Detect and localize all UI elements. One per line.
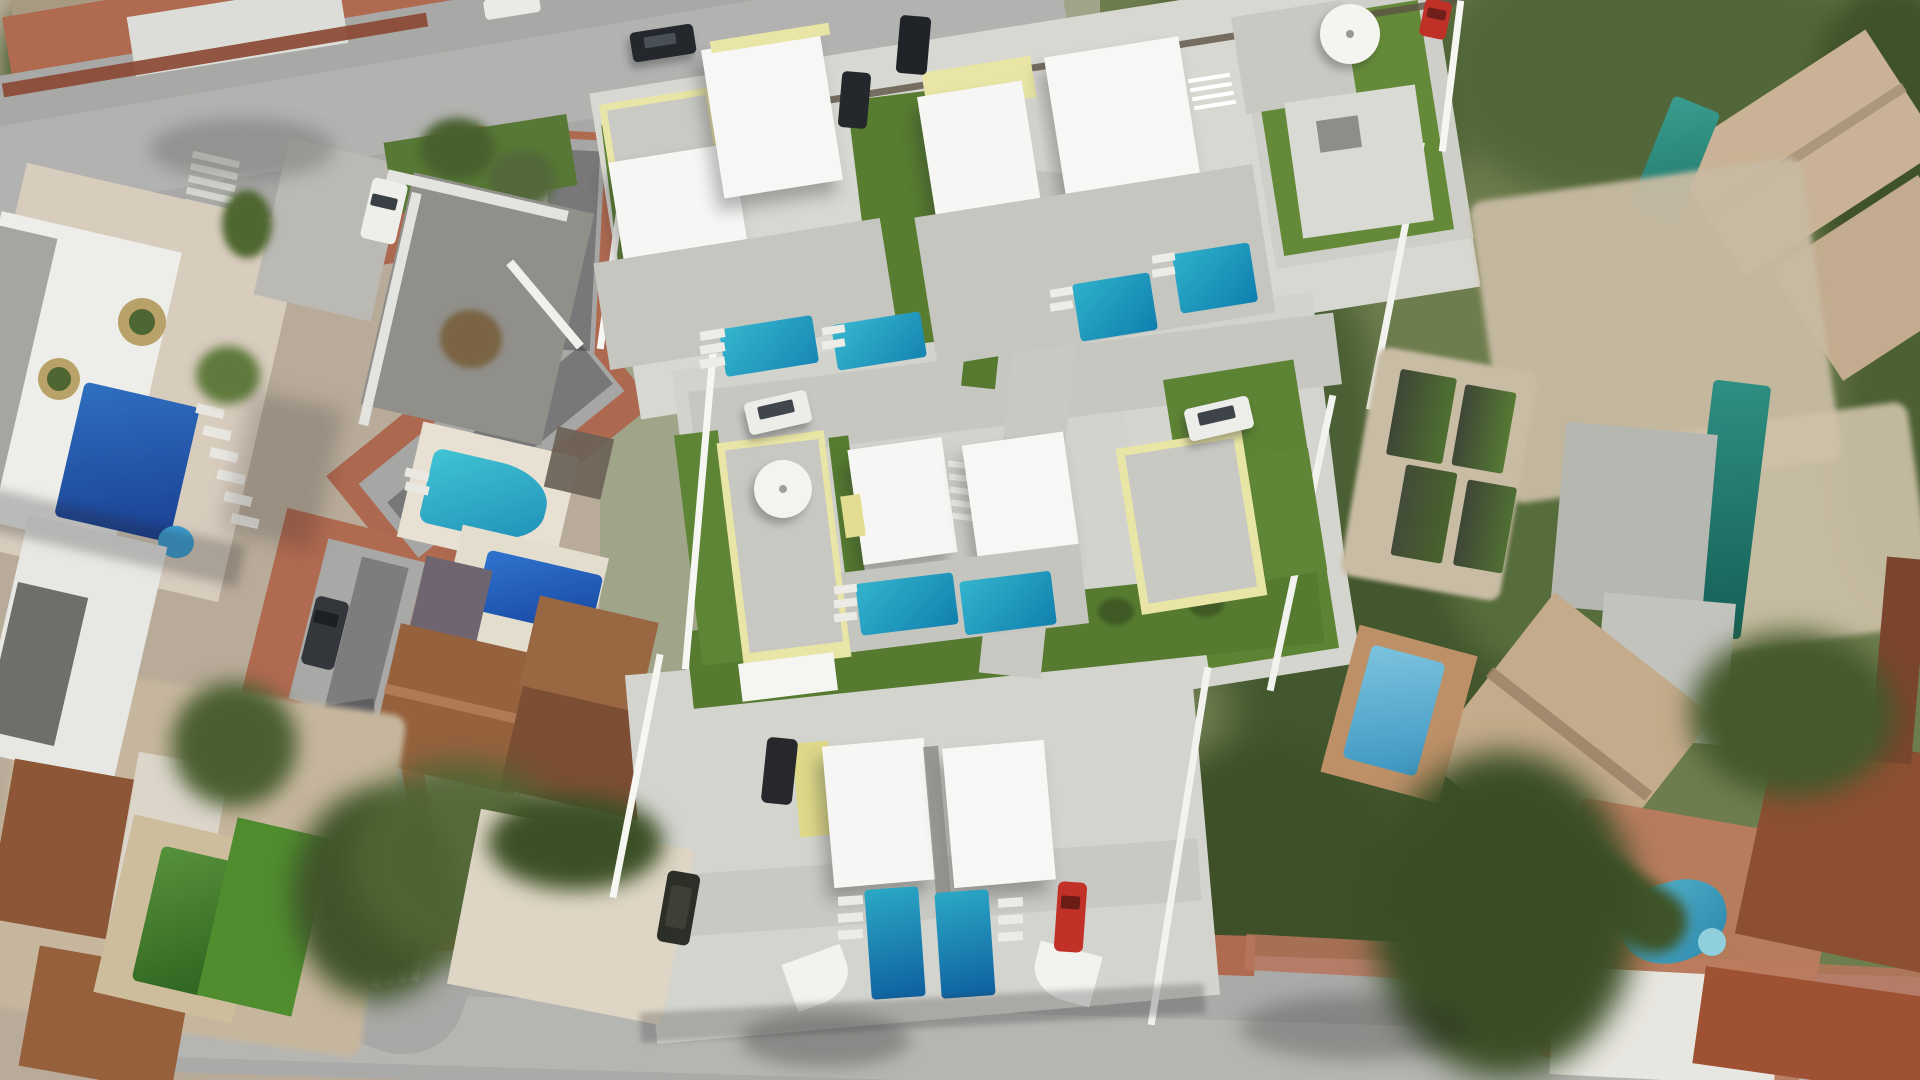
planter-shrub	[47, 367, 71, 391]
palm-tree	[420, 118, 495, 180]
palm-tree	[222, 190, 272, 258]
roof-unit	[1316, 115, 1362, 153]
sun-lounger	[998, 897, 1024, 908]
sun-lounger	[838, 895, 864, 906]
car-dark	[896, 15, 932, 75]
tree-cluster	[488, 795, 663, 890]
sun-lounger	[998, 931, 1024, 942]
car-windshield	[1061, 895, 1081, 909]
villa-roof-terrace	[1125, 438, 1257, 603]
aerial-photo	[0, 0, 1920, 1080]
sun-lounger	[998, 914, 1024, 925]
sun-lounger	[838, 912, 864, 923]
car-red	[1054, 881, 1088, 953]
car-dark	[838, 71, 872, 129]
tree-cluster	[1690, 632, 1895, 797]
planter-shrub	[129, 309, 155, 335]
villa-pool	[959, 571, 1057, 636]
umbrella-pole	[1346, 30, 1354, 38]
villa-pool	[1072, 272, 1158, 341]
sun-lounger	[838, 929, 864, 940]
tree-shadow	[150, 118, 335, 180]
flat-roof-gray	[1550, 422, 1718, 620]
villa-roof-white	[942, 740, 1056, 888]
villa-pool	[934, 889, 995, 999]
shrub	[1098, 598, 1134, 625]
tree-shadow	[740, 1012, 910, 1067]
villa-pool	[864, 886, 926, 999]
villa-roof-white	[701, 32, 843, 199]
villa-pool	[1172, 242, 1258, 313]
villa-roof-white	[847, 437, 957, 565]
tree-cluster	[172, 682, 297, 807]
villa-roof-white	[822, 738, 936, 888]
tree-shadow	[1240, 995, 1470, 1060]
flat-house-white	[1284, 84, 1434, 238]
umbrella-pole	[779, 485, 787, 493]
pool-steps	[1698, 928, 1726, 956]
